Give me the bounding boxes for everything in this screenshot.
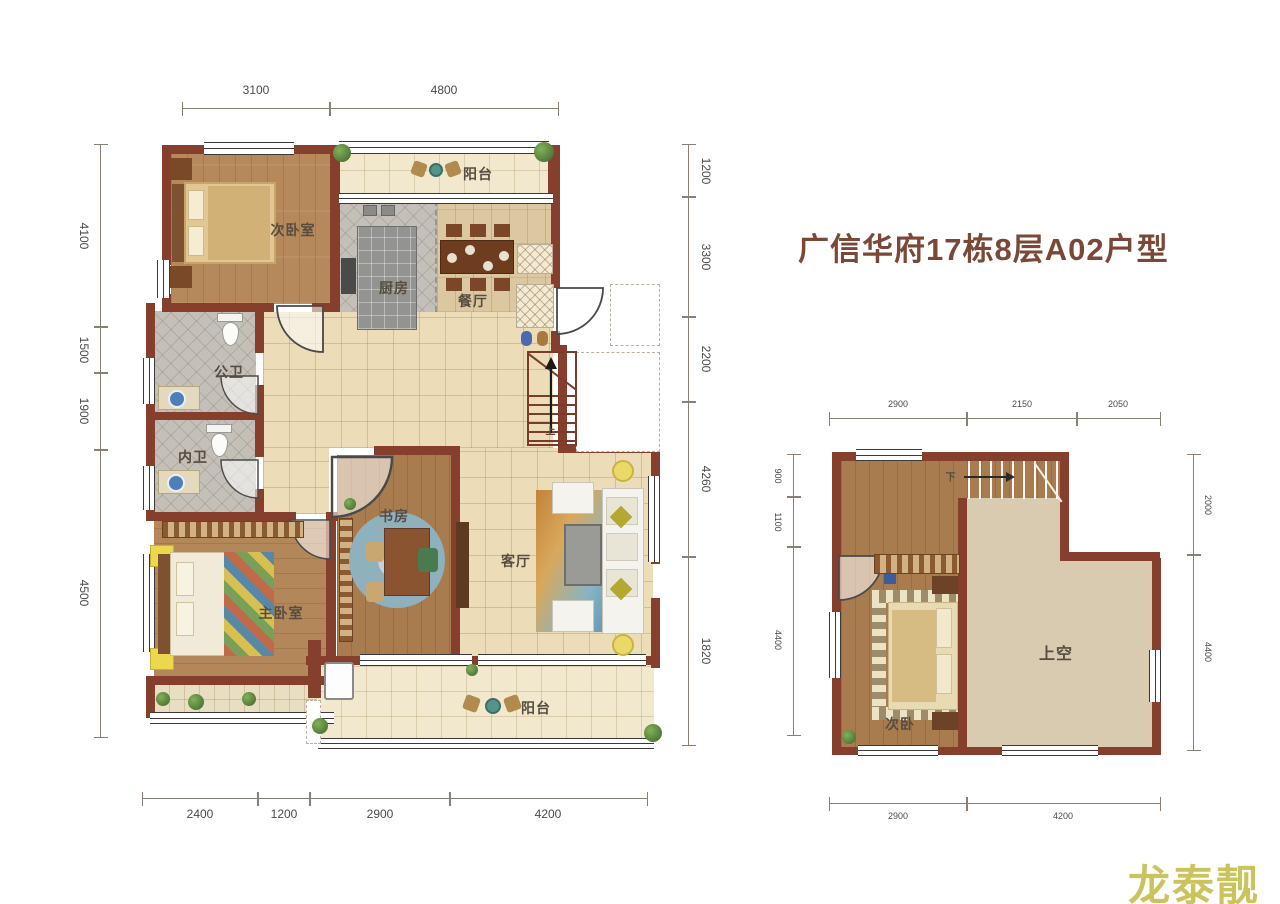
- bedroom-side-window: [829, 612, 841, 678]
- dim-line: [967, 803, 1160, 804]
- wall-segment: [1060, 552, 1160, 561]
- dim-line: [793, 547, 794, 735]
- shoes: [521, 331, 532, 346]
- dim-line: [688, 197, 689, 317]
- wall-segment: [958, 498, 967, 747]
- dim-line: [830, 418, 967, 419]
- exterior-ledge: [576, 352, 660, 452]
- bed-quilt: [892, 610, 936, 702]
- nightstand: [932, 576, 958, 594]
- living-window: [648, 476, 660, 562]
- side-table: [612, 634, 634, 656]
- dim-label: 4200: [1053, 811, 1073, 821]
- dim-line: [793, 455, 794, 497]
- bedroom-top-window: [856, 449, 922, 461]
- dim-label: 2050: [1108, 399, 1128, 409]
- sofa-cushion: [606, 533, 638, 561]
- room-label-bedroom: 次卧: [885, 714, 915, 734]
- floorplan-page: 广信华府17栋8层A02户型 龙泰靓房: [0, 0, 1280, 904]
- sofa: [602, 488, 644, 634]
- dim-label: 4400: [773, 630, 783, 650]
- stair-direction-arrow: [964, 476, 1008, 478]
- dim-label: 4260: [699, 466, 713, 493]
- dim-label: 3300: [699, 244, 713, 271]
- dim-line: [830, 803, 967, 804]
- dim-label: 900: [773, 468, 783, 483]
- decor-item: [884, 574, 896, 584]
- floorplan-upper-floor: 下 次卧 上空 2900 2150 2050 900 1100 4400 20: [0, 0, 520, 904]
- dim-line: [1193, 455, 1194, 555]
- dim-label: 2200: [699, 346, 713, 373]
- dim-line: [688, 317, 689, 402]
- watermark: 龙泰靓房: [1128, 852, 1280, 904]
- dim-line: [688, 145, 689, 197]
- dim-line: [967, 418, 1077, 419]
- page-title: 广信华府17栋8层A02户型: [798, 224, 1169, 269]
- entry-door: [557, 288, 603, 334]
- stairs-up-label: 上: [546, 423, 557, 438]
- bed-rug: [872, 590, 886, 720]
- dim-label: 1200: [699, 158, 713, 185]
- dim-label: 1820: [699, 638, 713, 665]
- stairs-down-label: 下: [946, 469, 957, 484]
- pillow: [936, 654, 952, 694]
- dim-label: 2900: [888, 399, 908, 409]
- void-floor: [967, 498, 1068, 747]
- entry-mat: [516, 284, 554, 328]
- wall-segment: [832, 452, 841, 755]
- dim-line: [1077, 418, 1160, 419]
- pillow: [936, 608, 952, 648]
- dim-line: [793, 497, 794, 547]
- armchair: [552, 600, 594, 632]
- void-bottom-window: [1002, 745, 1098, 756]
- room-label-void: 上空: [1039, 640, 1073, 664]
- stair-arrow-head: [1006, 472, 1015, 482]
- coffee-table: [564, 524, 602, 586]
- dim-label: 2900: [888, 811, 908, 821]
- nightstand: [932, 712, 958, 730]
- shoes: [537, 331, 548, 346]
- dim-label: 4400: [1203, 642, 1213, 662]
- dim-line: [688, 557, 689, 745]
- stairs-down: [968, 461, 1067, 499]
- void-floor: [1067, 560, 1152, 747]
- bedroom-bottom-window: [858, 745, 938, 756]
- room-label-balcony-bottom: 阳台: [521, 698, 551, 718]
- plant: [534, 142, 554, 162]
- dim-label: 2150: [1012, 399, 1032, 409]
- plant: [842, 730, 856, 744]
- void-side-window: [1149, 650, 1161, 702]
- dim-line: [688, 402, 689, 557]
- dim-label: 4200: [535, 807, 562, 821]
- dim-label: 1100: [773, 512, 783, 531]
- stair-arrow-head: [545, 357, 557, 369]
- wardrobe: [874, 554, 960, 574]
- dim-line: [1193, 555, 1194, 750]
- exterior-ledge: [610, 284, 660, 346]
- plant: [644, 724, 662, 742]
- armchair: [552, 482, 594, 514]
- dim-label: 2000: [1203, 495, 1213, 515]
- side-table: [612, 460, 634, 482]
- shoe-cabinet: [517, 244, 553, 274]
